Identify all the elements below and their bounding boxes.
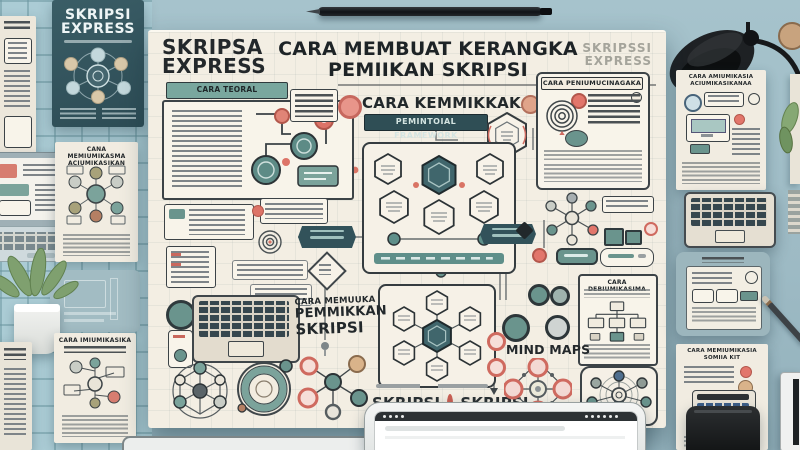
book-cover: SKRIPSI EXPRESS xyxy=(52,0,144,127)
teal-chip-1 xyxy=(604,228,624,246)
teal-ring-circle-3 xyxy=(502,314,530,342)
book-title-line1: SKRIPSI xyxy=(52,8,144,22)
tablet-browser-topbar xyxy=(375,412,637,421)
book-title-line2: EXPRESS xyxy=(52,22,144,36)
arrow-banner-left xyxy=(298,226,356,248)
bottom-center-heading: CARA MEMUUKA PEMMIKKAN SKRIPSI xyxy=(294,294,385,337)
right-panel-para-2 xyxy=(544,164,642,182)
note-card-2 xyxy=(600,248,654,267)
coral-badge-icon xyxy=(338,95,362,119)
left-note-box-4 xyxy=(232,260,308,280)
left-note-box-1 xyxy=(164,204,254,240)
mandala-mindmap-icon xyxy=(168,360,232,422)
bottom-center-mindmap-icon xyxy=(295,340,373,422)
mat-right-title-bars xyxy=(702,257,744,263)
right-edge-tablet xyxy=(780,372,800,450)
tablet-left-partial xyxy=(122,436,376,450)
note-card-1 xyxy=(602,196,654,213)
right-edge-keyboard xyxy=(788,190,800,234)
laptop-sketch-left xyxy=(192,295,300,363)
right-edge-leaf-icon xyxy=(774,100,800,156)
book-mindmap-diagram-icon xyxy=(61,47,135,105)
center-banner: PEMINTOIAL FRAMEWORK xyxy=(364,114,488,131)
paper-left-bottom-sketch-icon xyxy=(62,357,128,409)
radial-mindmap-icon xyxy=(544,192,600,250)
mat-right-sketch-panel xyxy=(686,266,762,330)
laptop-sketch-right xyxy=(684,192,776,248)
coral-ring-icon xyxy=(644,222,658,236)
paper-right-top-bars xyxy=(732,128,760,156)
paper-bottom-left-edge-text-bars xyxy=(4,368,26,438)
paper-left-mid-mindmap-icon xyxy=(65,164,127,226)
board-logo: SKRIPSA EXPRESS xyxy=(162,38,296,76)
coral-ring-circle-1 xyxy=(487,332,506,351)
paper-right-bottom-title: CARA MEMIUMIKASIA SOMIIA KIT xyxy=(680,348,764,361)
paper-right-top-teal-chip xyxy=(690,144,710,154)
grey-ring-circle xyxy=(545,315,570,340)
tree-panel-para-top xyxy=(584,289,650,298)
teal-chip-2 xyxy=(625,230,642,245)
right-panel-para-1 xyxy=(544,150,642,160)
mind-maps-label: MIND MAPS xyxy=(506,342,596,357)
right-article-panel: CARA PENIUMUCINAGAKA xyxy=(536,72,650,190)
teal-button xyxy=(556,248,598,265)
paper-right-top-title: CARA AMIUMIKASIA ACIUMIKASIKANAA xyxy=(680,74,762,87)
tablet-center xyxy=(364,402,646,450)
paper-right-top: CARA AMIUMIKASIA ACIUMIKASIKANAA xyxy=(676,70,766,190)
tablet-center-screen xyxy=(374,411,638,450)
teal-ring-circle-1 xyxy=(528,284,550,306)
paper-left-mid: CANA MEMIUMIKASMA ACIUMIKASIKAN xyxy=(55,142,138,262)
tree-flowchart-icon xyxy=(584,301,650,343)
paper-left-bottom: CARA IMIUMIKASIKA xyxy=(54,333,136,443)
board-watermark-line2: EXPRESS xyxy=(568,55,652,68)
hexagon-panel-lower xyxy=(378,284,496,388)
board-main-title: CARA MEMBUAT KERANGKA PEMIIKAN SKRIPSI xyxy=(278,39,578,81)
tablet-url-bar xyxy=(385,426,565,431)
stylus-pen xyxy=(306,6,554,18)
device-dark-right xyxy=(686,406,760,450)
paper-right-top-box1 xyxy=(704,92,744,107)
paper-bottom-left-edge xyxy=(0,342,32,450)
book-title: SKRIPSI EXPRESS xyxy=(52,8,144,36)
paper-right-top-monitor-sketch xyxy=(686,114,730,142)
skripsi-caption-bars xyxy=(376,384,488,388)
paper-right-top-shield-icon xyxy=(684,94,702,112)
board-logo-line2: EXPRESS xyxy=(162,57,296,76)
paper-left-bottom-subtitle-bars xyxy=(64,346,126,353)
board-watermark: SKRIPSSI EXPRESS xyxy=(568,42,652,68)
board-title-line1: CARA MEMBUAT KERANGKA xyxy=(278,39,578,60)
left-doc-text-bars xyxy=(172,110,242,188)
paper-left-edge-text-bars xyxy=(4,70,30,110)
left-note-box-2 xyxy=(260,198,328,224)
panel-caption-strip xyxy=(374,253,504,264)
paper-left-edge-sketch-box2 xyxy=(4,116,32,148)
bottom-center-heading-line3: SKRIPSI xyxy=(295,318,386,337)
paper-right-top-red-dot xyxy=(734,114,745,125)
teal-ring-circle-2 xyxy=(550,286,570,306)
whiteboard: SKRIPSA EXPRESS CARA MEMBUAT KERANGKA PE… xyxy=(148,30,666,428)
paper-left-edge-title-bars xyxy=(4,21,30,31)
paper-left-bottom-title: CARA IMIUMIKASIKA xyxy=(58,337,132,344)
right-panel-title: CARA PENIUMUCINAGAKA xyxy=(541,77,643,90)
paper-right-bottom-coral-dot xyxy=(740,366,752,378)
coral-dot-icon xyxy=(532,248,547,263)
paper-left-bottom-paragraph xyxy=(62,415,128,437)
teal-blob-icon xyxy=(565,130,588,147)
hexagon-ring-icon xyxy=(380,288,494,384)
right-panel-text-bars xyxy=(588,94,640,126)
paper-left-edge-sketch-box xyxy=(4,38,32,64)
book-caption-bars-right xyxy=(102,108,136,121)
paper-right-top-circled-num xyxy=(748,93,760,105)
spiral-icon-left xyxy=(254,228,286,256)
left-note-box-3 xyxy=(166,246,216,288)
paper-right-bottom-bars xyxy=(684,366,734,384)
left-section-banner: CARA TEORAL FRAMEWORK xyxy=(166,82,288,99)
gear-ring-icon xyxy=(236,356,294,420)
book-subtitle-bar xyxy=(64,40,132,43)
paper-right-top-paragraph xyxy=(682,162,760,184)
hexagon-panel-main xyxy=(362,142,516,274)
book-caption-bars-left xyxy=(60,108,96,121)
desk-scene: SKRIPSI EXPRESS xyxy=(0,0,800,450)
diamond-node xyxy=(308,252,342,286)
center-note-box xyxy=(290,89,338,122)
board-title-line2: PEMIIKAN SKRIPSI xyxy=(278,60,578,81)
sketch-mat-right xyxy=(676,252,770,336)
paper-bottom-left-edge-title-bars xyxy=(4,348,26,360)
